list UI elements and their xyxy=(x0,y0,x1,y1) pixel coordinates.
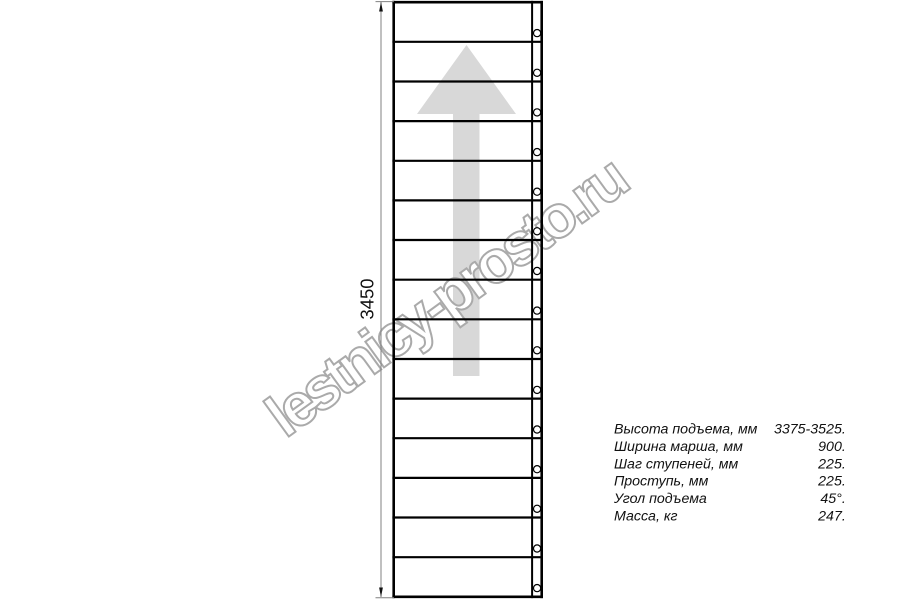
svg-text:Проступь, мм: Проступь, мм xyxy=(614,474,709,490)
svg-text:3450: 3450 xyxy=(357,278,378,319)
svg-text:225.: 225. xyxy=(817,474,846,490)
svg-text:Ширина марша, мм: Ширина марша, мм xyxy=(614,439,743,455)
svg-text:247.: 247. xyxy=(817,509,846,525)
svg-text:Масса, кг: Масса, кг xyxy=(614,509,678,525)
svg-text:Высота подъема, мм: Высота подъема, мм xyxy=(614,422,758,438)
svg-text:Шаг ступеней, мм: Шаг ступеней, мм xyxy=(614,456,738,472)
svg-text:Угол подъема: Угол подъема xyxy=(613,491,707,507)
svg-text:3375-3525.: 3375-3525. xyxy=(774,422,846,438)
svg-text:900.: 900. xyxy=(818,439,846,455)
svg-text:225.: 225. xyxy=(817,456,846,472)
svg-text:45°.: 45°. xyxy=(820,491,845,507)
